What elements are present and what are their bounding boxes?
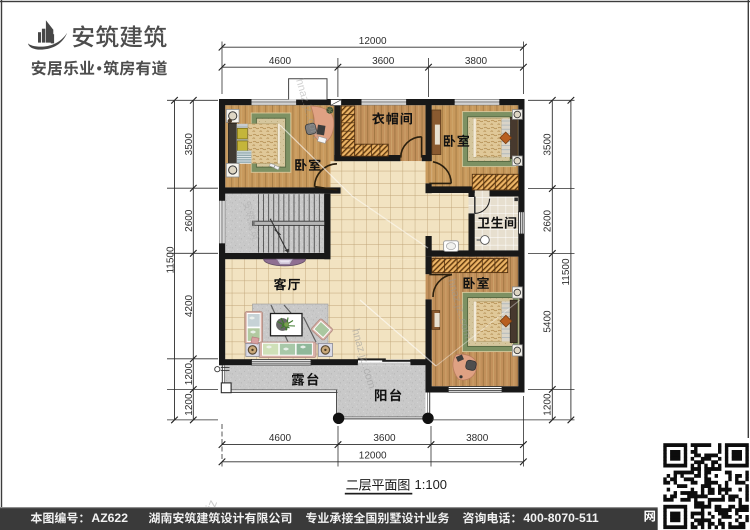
svg-text:1200: 1200 [184,363,195,386]
svg-text:1200: 1200 [184,393,195,416]
svg-text:1:100: 1:100 [415,477,448,492]
svg-text:AZ622: AZ622 [91,511,128,525]
svg-text:4200: 4200 [184,294,195,317]
svg-text:3600: 3600 [373,433,396,444]
svg-text:400-8070-511: 400-8070-511 [523,511,598,525]
svg-text:4600: 4600 [269,56,292,67]
svg-text:2600: 2600 [542,209,553,232]
svg-text:4600: 4600 [269,433,292,444]
svg-text:5400: 5400 [542,310,553,333]
svg-text:11500: 11500 [561,258,572,286]
svg-text:1200: 1200 [542,393,553,416]
svg-text:3800: 3800 [465,56,488,67]
svg-text:12000: 12000 [359,36,387,47]
svg-text:11500: 11500 [165,246,176,274]
svg-text:3600: 3600 [372,56,395,67]
svg-text:12000: 12000 [359,450,387,461]
svg-text:2600: 2600 [184,209,195,232]
svg-text:3500: 3500 [184,133,195,156]
svg-text:3500: 3500 [542,133,553,156]
svg-text:3800: 3800 [466,433,489,444]
